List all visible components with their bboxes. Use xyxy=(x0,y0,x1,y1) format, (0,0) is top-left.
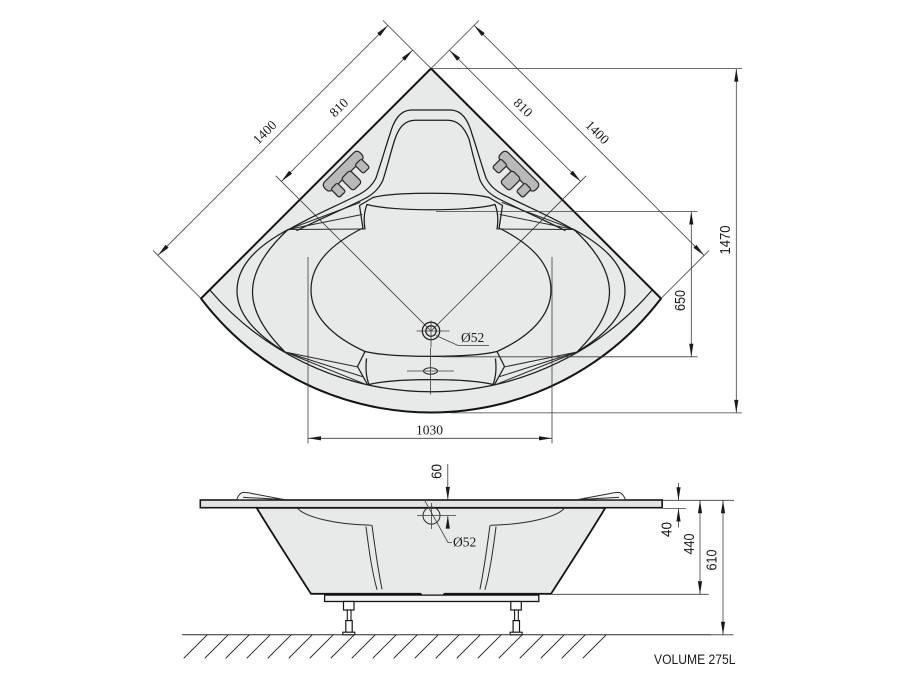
svg-text:1400: 1400 xyxy=(250,117,280,147)
svg-text:650: 650 xyxy=(672,290,689,311)
svg-text:810: 810 xyxy=(511,95,536,120)
svg-text:40: 40 xyxy=(659,522,676,537)
svg-text:440: 440 xyxy=(681,534,698,555)
svg-text:610: 610 xyxy=(704,550,721,571)
svg-text:VOLUME 275L: VOLUME 275L xyxy=(654,652,736,667)
svg-text:60: 60 xyxy=(429,464,446,479)
svg-text:810: 810 xyxy=(326,95,351,120)
svg-text:1470: 1470 xyxy=(717,226,734,255)
svg-text:1400: 1400 xyxy=(583,117,613,147)
svg-text:Ø52: Ø52 xyxy=(461,330,484,345)
svg-text:1030: 1030 xyxy=(416,423,443,438)
svg-text:Ø52: Ø52 xyxy=(453,535,476,550)
